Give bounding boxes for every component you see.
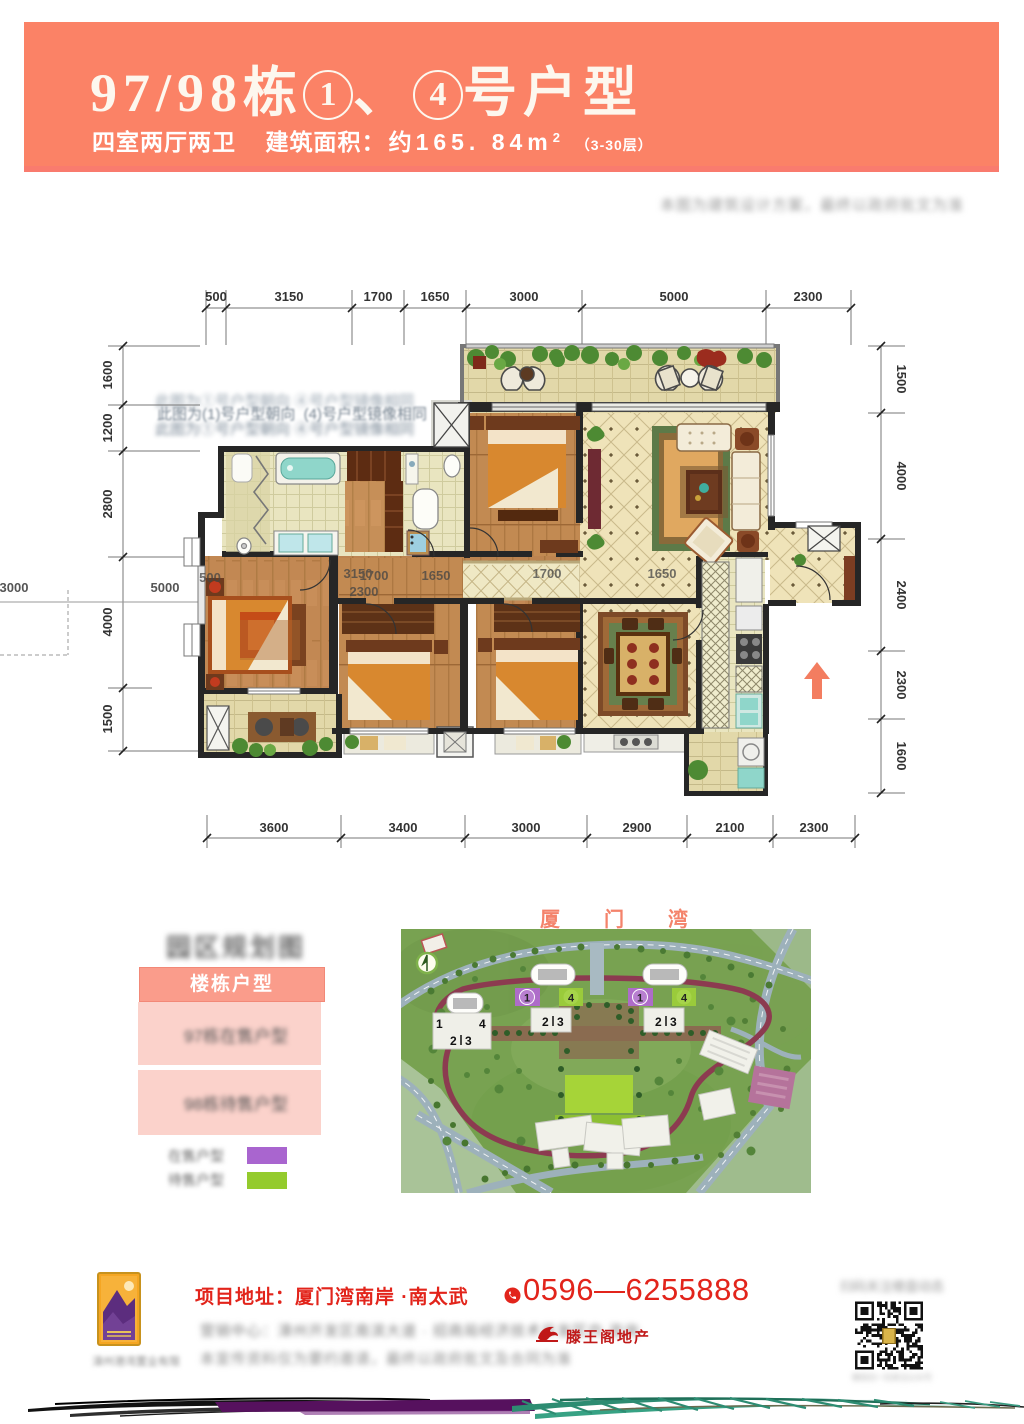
svg-text:1650: 1650 bbox=[648, 566, 677, 581]
svg-text:1500: 1500 bbox=[894, 365, 909, 394]
svg-text:4: 4 bbox=[681, 993, 688, 1005]
svg-text:1700: 1700 bbox=[364, 289, 393, 304]
svg-text:1: 1 bbox=[524, 993, 530, 1005]
svg-text:2: 2 bbox=[450, 1034, 457, 1048]
svg-text:2: 2 bbox=[655, 1015, 662, 1029]
svg-text:3600: 3600 bbox=[260, 820, 289, 835]
svg-text:3400: 3400 bbox=[389, 820, 418, 835]
svg-text:1650: 1650 bbox=[422, 568, 451, 583]
svg-text:1: 1 bbox=[637, 993, 643, 1005]
svg-text:2: 2 bbox=[542, 1015, 549, 1029]
svg-text:5000: 5000 bbox=[660, 289, 689, 304]
svg-text:4000: 4000 bbox=[894, 462, 909, 491]
svg-text:3: 3 bbox=[670, 1015, 677, 1029]
svg-text:3000: 3000 bbox=[510, 289, 539, 304]
svg-text:2300: 2300 bbox=[800, 820, 829, 835]
svg-text:1500: 1500 bbox=[100, 705, 115, 734]
svg-text:4000: 4000 bbox=[100, 608, 115, 637]
svg-text:1200: 1200 bbox=[100, 414, 115, 443]
svg-text:2300: 2300 bbox=[894, 671, 909, 700]
svg-text:4: 4 bbox=[568, 993, 575, 1005]
svg-text:3: 3 bbox=[465, 1034, 472, 1048]
svg-text:3000: 3000 bbox=[512, 820, 541, 835]
svg-text:2900: 2900 bbox=[623, 820, 652, 835]
svg-text:5000: 5000 bbox=[151, 580, 180, 595]
svg-text:2300: 2300 bbox=[794, 289, 823, 304]
svg-text:3150: 3150 bbox=[275, 289, 304, 304]
svg-text:1600: 1600 bbox=[894, 742, 909, 771]
svg-text:3000: 3000 bbox=[0, 580, 28, 595]
svg-text:1650: 1650 bbox=[421, 289, 450, 304]
svg-text:1700: 1700 bbox=[533, 566, 562, 581]
svg-text:2300: 2300 bbox=[350, 584, 379, 599]
svg-text:3: 3 bbox=[557, 1015, 564, 1029]
svg-text:500: 500 bbox=[205, 289, 227, 304]
svg-text:4: 4 bbox=[479, 1017, 486, 1031]
svg-text:1: 1 bbox=[436, 1017, 443, 1031]
svg-text:2800: 2800 bbox=[100, 490, 115, 519]
svg-text:2100: 2100 bbox=[716, 820, 745, 835]
svg-text:2400: 2400 bbox=[894, 581, 909, 610]
svg-text:500: 500 bbox=[199, 570, 221, 585]
svg-text:1600: 1600 bbox=[100, 361, 115, 390]
svg-text:1700: 1700 bbox=[360, 568, 389, 583]
